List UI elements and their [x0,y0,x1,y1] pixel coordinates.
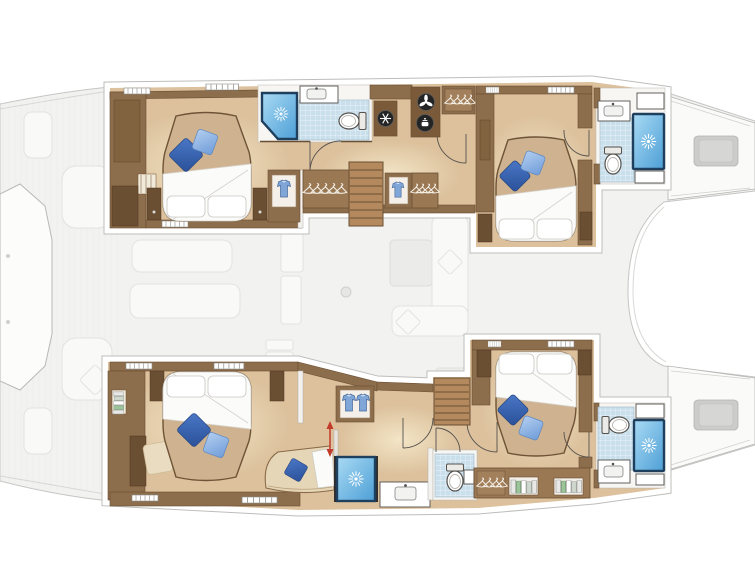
bedside-locker [147,188,161,220]
washbasin [598,460,630,483]
mast-post [341,287,351,297]
toilet [602,417,629,434]
bathroom-starboard-forward [594,403,665,488]
pillow [499,219,534,239]
saloon-table [390,240,432,286]
hanging-locker [442,86,475,114]
aft-platform [0,184,52,390]
toilet [447,464,464,491]
shower-room [334,456,378,502]
wardrobe-shirt-locker [385,173,412,208]
fridge-snowflake-icon [378,111,394,127]
foredeck-starboard [668,366,755,470]
bedside-locker [580,212,592,240]
toilet [339,113,366,130]
double-bed [496,137,576,241]
pillow [537,354,572,374]
fan-vent-icon [418,94,435,111]
bedside-locker [478,214,492,242]
hanging-locker [303,170,350,208]
bedside-locker [150,371,164,401]
double-bed [163,113,251,222]
bedside-locker [578,350,591,375]
stove-icon [417,115,434,132]
toilet [605,147,622,174]
pillow [499,354,534,374]
washbasin [300,86,338,103]
pillow [167,376,205,397]
pillow [208,196,246,217]
staircase-starboard [434,378,470,425]
hanging-locker [411,173,440,208]
staircase-port [349,162,383,226]
double-bed [163,372,251,481]
bedside-locker [270,371,284,401]
bedside-locker [477,350,491,377]
wardrobe-shirt-locker [268,170,300,222]
foredeck-port [668,96,755,200]
bathroom-port-forward [594,88,665,184]
washbasin [598,101,630,121]
catamaran-floor-plan [0,0,755,566]
washbasin [380,482,430,507]
floor-plan-canvas: Catamaran 4-cabin layout — top-down floo… [0,0,755,566]
pillow [167,196,205,217]
corner-basin [464,470,474,484]
wardrobe-shirt-locker [336,386,374,422]
pillow [208,376,246,397]
double-bed [496,352,576,456]
wardrobe-row [474,468,590,498]
bedside-locker [253,188,267,220]
pillow [537,219,572,239]
